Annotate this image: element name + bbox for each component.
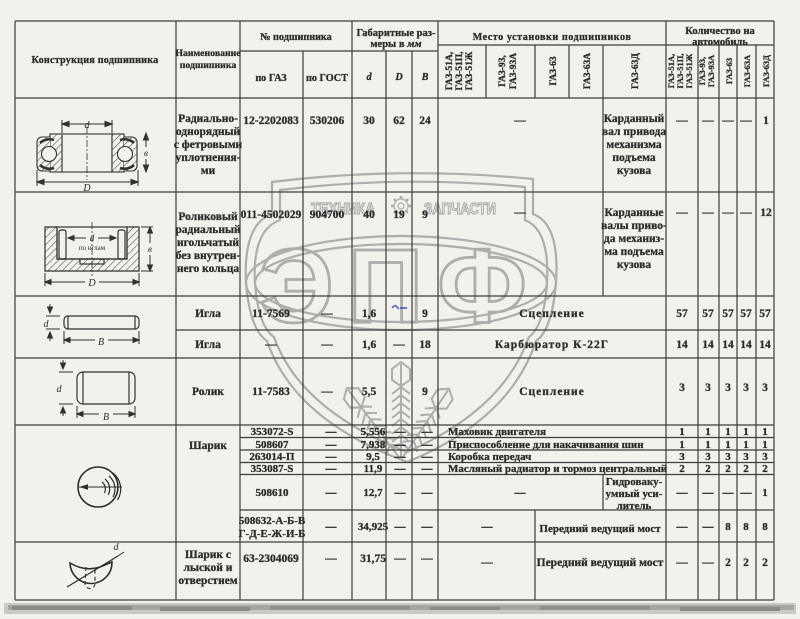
svg-text:Радиально-: Радиально- xyxy=(178,113,238,125)
svg-text:9: 9 xyxy=(422,308,428,320)
svg-text:—: — xyxy=(421,451,434,463)
svg-text:—: — xyxy=(264,339,277,351)
svg-text:2: 2 xyxy=(679,463,685,475)
svg-text:011-4502029: 011-4502029 xyxy=(241,209,302,221)
svg-text:Передний ведущий мост: Передний ведущий мост xyxy=(537,557,664,569)
svg-text:9,5: 9,5 xyxy=(366,451,380,463)
svg-text:Роликовый: Роликовый xyxy=(178,211,238,223)
svg-text:14: 14 xyxy=(722,339,734,351)
svg-text:—: — xyxy=(421,426,434,438)
svg-text:—: — xyxy=(421,521,434,533)
svg-text:—: — xyxy=(421,487,434,499)
svg-text:—: — xyxy=(514,487,527,499)
svg-text:автомобиль: автомобиль xyxy=(692,37,748,48)
svg-text:3: 3 xyxy=(679,382,685,394)
svg-text:—: — xyxy=(325,439,338,451)
svg-text:11,9: 11,9 xyxy=(364,463,383,475)
svg-text:7,938: 7,938 xyxy=(361,439,386,451)
svg-text:34,925: 34,925 xyxy=(358,521,389,533)
svg-text:3: 3 xyxy=(762,451,768,463)
svg-text:валы приво-: валы приво- xyxy=(601,220,667,232)
svg-text:3: 3 xyxy=(679,451,685,463)
svg-text:1: 1 xyxy=(743,439,749,451)
svg-text:—: — xyxy=(739,207,752,219)
svg-text:3: 3 xyxy=(743,451,749,463)
svg-text:ГАЗ-63А: ГАЗ-63А xyxy=(742,54,752,87)
svg-text:1: 1 xyxy=(705,426,711,438)
svg-text:—: — xyxy=(675,115,688,127)
svg-text:—: — xyxy=(393,553,406,565)
svg-text:подшипника: подшипника xyxy=(180,60,237,71)
svg-text:—: — xyxy=(325,521,338,533)
svg-text:1: 1 xyxy=(705,439,711,451)
svg-text:—: — xyxy=(676,487,689,499)
svg-text:игольчатый: игольчатый xyxy=(177,237,239,249)
svg-text:Место установки подшипников: Место установки подшипников xyxy=(473,32,632,43)
svg-text:1: 1 xyxy=(725,439,731,451)
svg-text:ГАЗ-63: ГАЗ-63 xyxy=(724,58,734,84)
svg-text:с фетровыми: с фетровыми xyxy=(174,139,243,151)
svg-text:40: 40 xyxy=(363,209,375,221)
svg-text:904700: 904700 xyxy=(310,209,345,221)
svg-text:кузова: кузова xyxy=(617,259,651,271)
svg-text:—: — xyxy=(701,207,714,219)
svg-text:—: — xyxy=(394,521,407,533)
svg-text:ГАЗ-51А,: ГАЗ-51А, xyxy=(445,51,455,90)
svg-text:353087-S: 353087-S xyxy=(251,463,294,475)
svg-text:3: 3 xyxy=(762,382,768,394)
svg-text:2: 2 xyxy=(743,463,749,475)
svg-text:9: 9 xyxy=(422,209,428,221)
svg-text:24: 24 xyxy=(419,115,431,127)
svg-text:ГАЗ-63А: ГАЗ-63А xyxy=(583,53,593,89)
svg-text:2: 2 xyxy=(762,463,768,475)
svg-text:8: 8 xyxy=(762,521,768,533)
svg-text:Коробка передач: Коробка передач xyxy=(448,451,531,463)
svg-text:—: — xyxy=(739,115,752,127)
svg-text:ГАЗ-51П,: ГАЗ-51П, xyxy=(455,51,465,91)
svg-text:меры в мм: меры в мм xyxy=(370,39,421,50)
svg-text:Карданный: Карданный xyxy=(604,113,665,125)
svg-text:—: — xyxy=(325,463,338,475)
svg-text:62: 62 xyxy=(393,115,405,127)
svg-text:19: 19 xyxy=(393,209,405,221)
svg-text:кузова: кузова xyxy=(617,165,651,177)
svg-text:однорядный: однорядный xyxy=(176,126,241,138)
svg-text:ЭПФ: ЭПФ xyxy=(259,228,541,345)
svg-text:—: — xyxy=(320,339,333,351)
svg-text:Габаритные раз-: Габаритные раз- xyxy=(357,28,436,39)
svg-text:11-7583: 11-7583 xyxy=(252,386,290,398)
svg-text:ГАЗ-93А: ГАЗ-93А xyxy=(509,53,519,89)
svg-text:Гидроваку-: Гидроваку- xyxy=(606,476,663,488)
svg-text:отверстием: отверстием xyxy=(178,575,237,587)
svg-text:1: 1 xyxy=(679,426,685,438)
svg-text:ГАЗ-93А: ГАЗ-93А xyxy=(706,54,716,87)
svg-text:да механиз-: да механиз- xyxy=(604,233,664,245)
svg-text:508632-А-Б-В: 508632-А-Б-В xyxy=(239,515,306,527)
svg-text:Шарик с: Шарик с xyxy=(185,549,231,561)
svg-text:—: — xyxy=(702,521,715,533)
svg-text:508610: 508610 xyxy=(256,487,290,499)
svg-text:353072-S: 353072-S xyxy=(251,426,294,438)
svg-text:Маховик двигателя: Маховик двигателя xyxy=(448,426,546,438)
svg-text:12: 12 xyxy=(760,207,772,219)
svg-text:ГАЗ-63: ГАЗ-63 xyxy=(549,56,559,86)
svg-text:18: 18 xyxy=(419,339,431,351)
svg-text:57: 57 xyxy=(722,308,734,320)
svg-text:2: 2 xyxy=(725,463,731,475)
svg-text:1: 1 xyxy=(679,439,685,451)
svg-text:12,7: 12,7 xyxy=(363,487,383,499)
svg-text:9: 9 xyxy=(422,386,428,398)
svg-text:—: — xyxy=(394,451,407,463)
svg-text:Г-Д-Е-Ж-И-Б: Г-Д-Е-Ж-И-Б xyxy=(239,528,306,540)
svg-text:Передний ведущий мост: Передний ведущий мост xyxy=(539,523,661,535)
svg-text:Количество на: Количество на xyxy=(685,26,755,37)
svg-text:радиальный: радиальный xyxy=(175,224,241,236)
svg-text:1: 1 xyxy=(743,426,749,438)
svg-text:ГАЗ-63Д: ГАЗ-63Д xyxy=(631,53,641,89)
svg-text:Карданные: Карданные xyxy=(604,207,663,219)
svg-text:2: 2 xyxy=(705,463,711,475)
svg-text:—: — xyxy=(394,487,407,499)
svg-text:лыской и: лыской и xyxy=(184,562,233,574)
svg-text:—: — xyxy=(324,553,337,565)
svg-text:—: — xyxy=(320,308,333,320)
svg-text:ГАЗ-51Ж: ГАЗ-51Ж xyxy=(465,51,475,90)
svg-text:В: В xyxy=(98,337,104,348)
svg-text:—: — xyxy=(702,487,715,499)
svg-text:—: — xyxy=(722,487,735,499)
svg-text:—: — xyxy=(394,426,407,438)
svg-text:—: — xyxy=(325,451,338,463)
svg-text:подъема: подъема xyxy=(612,152,655,164)
svg-text:1,6: 1,6 xyxy=(362,339,377,351)
svg-text:—: — xyxy=(513,207,526,219)
svg-text:3: 3 xyxy=(743,382,749,394)
svg-text:5,5: 5,5 xyxy=(362,386,377,398)
svg-text:d: d xyxy=(44,319,50,330)
svg-text:14: 14 xyxy=(702,339,714,351)
svg-text:Сцепление: Сцепление xyxy=(519,386,585,398)
svg-text:D: D xyxy=(394,72,403,83)
svg-text:В: В xyxy=(421,72,429,83)
svg-text:30: 30 xyxy=(363,115,375,127)
svg-text:Карбюратор К-22Г: Карбюратор К-22Г xyxy=(495,339,609,351)
svg-text:—: — xyxy=(481,521,494,533)
svg-text:Наименование: Наименование xyxy=(175,48,241,59)
svg-text:—: — xyxy=(480,557,493,569)
svg-text:d: d xyxy=(366,72,372,83)
svg-text:2: 2 xyxy=(762,557,768,569)
svg-text:В: В xyxy=(103,412,109,423)
svg-text:5,556: 5,556 xyxy=(361,426,386,438)
svg-text:Масляный радиатор и тормоз цен: Масляный радиатор и тормоз центральный xyxy=(448,463,668,475)
svg-text:14: 14 xyxy=(676,339,688,351)
svg-text:ми: ми xyxy=(201,165,216,177)
svg-text:без внутрен-: без внутрен- xyxy=(176,250,241,262)
svg-text:уплотнения-: уплотнения- xyxy=(175,152,240,164)
svg-text:14: 14 xyxy=(740,339,752,351)
svg-text:—: — xyxy=(721,207,734,219)
svg-text:—: — xyxy=(421,439,434,451)
svg-text:Конструкция подшипника: Конструкция подшипника xyxy=(32,55,159,66)
svg-text:14: 14 xyxy=(759,339,771,351)
svg-text:Игла: Игла xyxy=(195,308,221,320)
svg-text:—: — xyxy=(394,439,407,451)
svg-text:Игла: Игла xyxy=(195,339,221,351)
svg-text:—: — xyxy=(701,115,714,127)
svg-text:d: d xyxy=(114,542,120,553)
svg-text:d: d xyxy=(85,120,91,131)
svg-text:—: — xyxy=(320,386,333,398)
svg-text:вал привода: вал привода xyxy=(602,126,666,138)
svg-text:него кольца: него кольца xyxy=(177,263,240,275)
svg-text:3: 3 xyxy=(705,451,711,463)
svg-text:263014-П: 263014-П xyxy=(249,451,295,463)
svg-text:57: 57 xyxy=(702,308,714,320)
svg-text:1: 1 xyxy=(762,487,768,499)
svg-text:D: D xyxy=(82,183,91,194)
svg-text:Сцепление: Сцепление xyxy=(519,308,585,320)
svg-text:1: 1 xyxy=(762,439,768,451)
svg-text:Ролик: Ролик xyxy=(192,386,224,398)
svg-text:—: — xyxy=(675,557,688,569)
svg-text:—: — xyxy=(420,553,433,565)
svg-text:—: — xyxy=(701,557,714,569)
svg-text:в: в xyxy=(144,148,148,158)
svg-text:—: — xyxy=(325,487,338,499)
svg-text:530206: 530206 xyxy=(310,115,345,127)
svg-text:—: — xyxy=(675,207,688,219)
svg-text:—: — xyxy=(676,521,689,533)
svg-text:12-2202083: 12-2202083 xyxy=(243,115,299,127)
svg-text:57: 57 xyxy=(676,308,688,320)
svg-text:3: 3 xyxy=(705,382,711,394)
svg-text:литель: литель xyxy=(617,500,652,512)
svg-text:ма подъема: ма подъема xyxy=(604,246,664,258)
svg-text:2: 2 xyxy=(725,557,731,569)
svg-text:—: — xyxy=(740,487,753,499)
svg-text:1,6: 1,6 xyxy=(362,308,377,320)
svg-text:—: — xyxy=(421,463,434,475)
svg-text:умный уси-: умный уси- xyxy=(606,488,663,500)
svg-text:в: в xyxy=(148,244,152,254)
svg-text:1: 1 xyxy=(725,426,731,438)
svg-text:508607: 508607 xyxy=(256,439,290,451)
svg-text:ГАЗ-51Ж: ГАЗ-51Ж xyxy=(684,53,694,88)
svg-text:механизма: механизма xyxy=(606,139,662,151)
svg-text:57: 57 xyxy=(740,308,752,320)
svg-text:ГАЗ-63Д: ГАЗ-63Д xyxy=(761,55,771,87)
svg-text:—: — xyxy=(721,115,734,127)
svg-text:Шарик: Шарик xyxy=(189,440,227,452)
svg-text:2: 2 xyxy=(743,557,749,569)
svg-text:1: 1 xyxy=(762,426,768,438)
svg-text:Приспособление для накачивания: Приспособление для накачивания шин xyxy=(448,439,644,451)
svg-text:ЗАПЧАСТИ: ЗАПЧАСТИ xyxy=(424,201,496,218)
svg-text:3: 3 xyxy=(725,382,731,394)
svg-text:—: — xyxy=(325,426,338,438)
svg-text:по ГОСТ: по ГОСТ xyxy=(306,73,348,84)
svg-text:57: 57 xyxy=(759,308,771,320)
svg-text:ГАЗ-93,: ГАЗ-93, xyxy=(498,55,508,87)
svg-text:1: 1 xyxy=(763,115,769,127)
svg-text:по ГАЗ: по ГАЗ xyxy=(255,73,287,84)
svg-text:63-2304069: 63-2304069 xyxy=(243,553,299,565)
svg-text:11-7569: 11-7569 xyxy=(252,308,290,320)
svg-text:—: — xyxy=(392,339,405,351)
svg-text:8: 8 xyxy=(725,521,731,533)
svg-text:D: D xyxy=(87,278,96,289)
svg-text:№ подшипника: № подшипника xyxy=(260,32,332,43)
svg-text:3: 3 xyxy=(725,451,731,463)
svg-text:—: — xyxy=(513,115,526,127)
svg-text:8: 8 xyxy=(743,521,749,533)
svg-text:—: — xyxy=(394,463,407,475)
svg-text:d: d xyxy=(57,384,63,395)
svg-text:31,75: 31,75 xyxy=(360,553,386,565)
